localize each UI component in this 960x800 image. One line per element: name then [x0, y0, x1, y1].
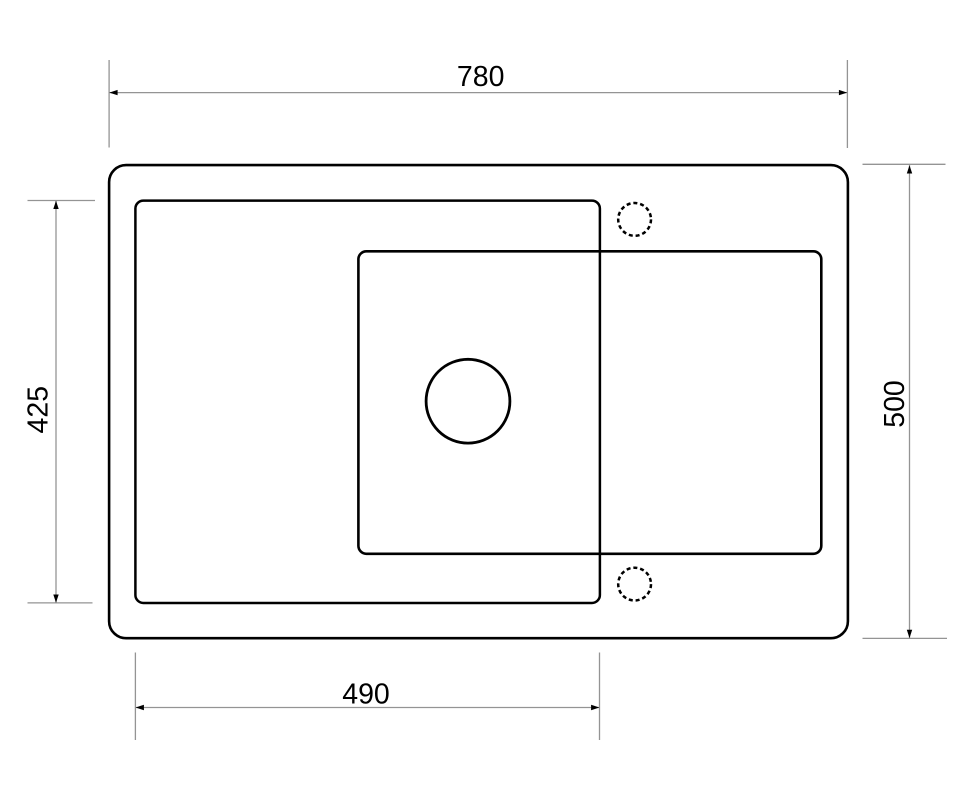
svg-text:500: 500 — [879, 380, 911, 428]
svg-text:780: 780 — [457, 61, 505, 93]
svg-text:425: 425 — [23, 386, 55, 434]
svg-text:490: 490 — [342, 679, 390, 711]
